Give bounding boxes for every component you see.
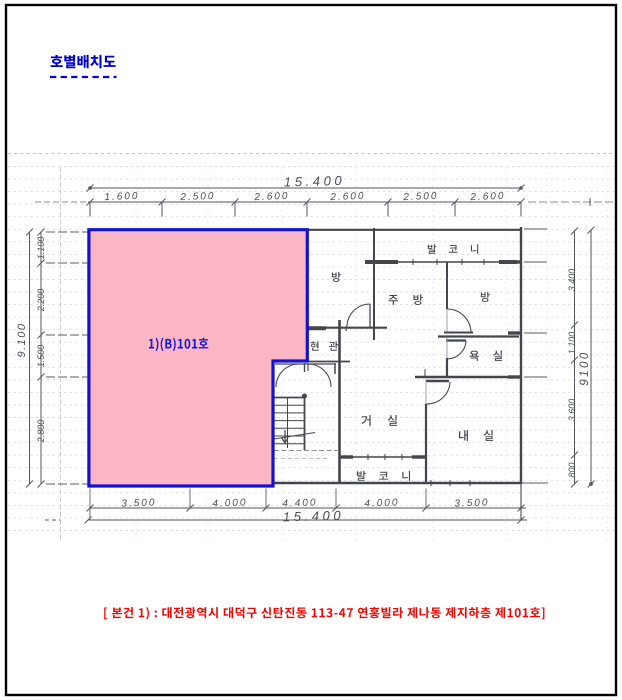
svg-text:4.000: 4.000 <box>364 497 399 509</box>
svg-text:1.600: 1.600 <box>104 191 139 203</box>
svg-text:2.500: 2.500 <box>179 191 215 203</box>
svg-text:1.500: 1.500 <box>36 345 46 368</box>
svg-text:3.400: 3.400 <box>567 269 577 292</box>
svg-text:15.400: 15.400 <box>284 173 346 190</box>
svg-text:9100: 9100 <box>579 350 591 386</box>
svg-text:3.600: 3.600 <box>567 399 577 422</box>
svg-text:2.200: 2.200 <box>36 289 46 313</box>
svg-text:2.600: 2.600 <box>329 191 365 203</box>
svg-text:4.000: 4.000 <box>212 497 247 509</box>
svg-text:9.100: 9.100 <box>16 322 28 357</box>
svg-text:1.100: 1.100 <box>36 237 46 260</box>
svg-text:2.800: 2.800 <box>36 420 46 444</box>
svg-text:1.100: 1.100 <box>567 332 577 355</box>
svg-text:800: 800 <box>567 462 577 477</box>
svg-text:15.400: 15.400 <box>283 508 345 525</box>
svg-text:2.600: 2.600 <box>253 191 289 203</box>
svg-text:3.500: 3.500 <box>121 497 156 509</box>
svg-text:2.500: 2.500 <box>402 191 438 203</box>
svg-text:3.500: 3.500 <box>454 497 489 509</box>
svg-text:2.600: 2.600 <box>469 191 505 203</box>
